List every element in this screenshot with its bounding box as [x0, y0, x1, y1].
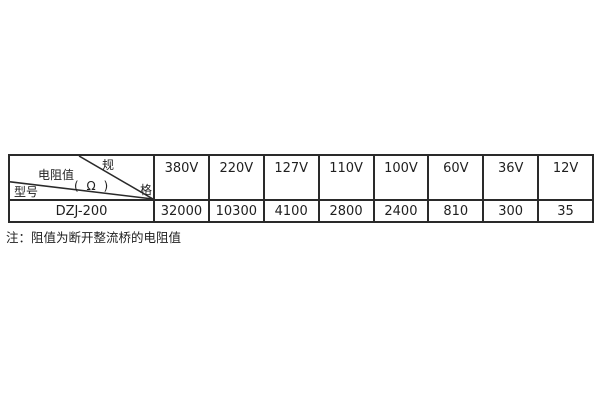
- corner-resistance-label: 电阻值: [38, 169, 74, 181]
- column-header-220v: 220V: [209, 155, 264, 200]
- corner-model-label: 型号: [14, 186, 38, 198]
- value-cell-110v: 2800: [319, 200, 374, 222]
- page: 规 格 电阻值 ( Ω ) 型号 380V 220V 127V 110V 100…: [0, 0, 600, 400]
- value-cell-60v: 810: [428, 200, 483, 222]
- value-cell-100v: 2400: [374, 200, 429, 222]
- corner-unit-label: ( Ω ): [74, 180, 110, 192]
- table-header-row: 规 格 电阻值 ( Ω ) 型号 380V 220V 127V 110V 100…: [9, 155, 593, 200]
- value-cell-12v: 35: [538, 200, 593, 222]
- column-header-100v: 100V: [374, 155, 429, 200]
- corner-spec-label-part2: 格: [140, 184, 152, 196]
- note-text: 注：阻值为断开整流桥的电阻值: [6, 227, 181, 246]
- table-data-row: DZJ-200 32000 10300 4100 2800 2400 810 3…: [9, 200, 593, 222]
- corner-spec-label-part1: 规: [102, 159, 114, 171]
- table-corner-cell: 规 格 电阻值 ( Ω ) 型号: [9, 155, 154, 200]
- column-header-12v: 12V: [538, 155, 593, 200]
- model-cell: DZJ-200: [9, 200, 154, 222]
- column-header-36v: 36V: [483, 155, 538, 200]
- column-header-380v: 380V: [154, 155, 209, 200]
- value-cell-127v: 4100: [264, 200, 319, 222]
- value-cell-36v: 300: [483, 200, 538, 222]
- column-header-60v: 60V: [428, 155, 483, 200]
- column-header-127v: 127V: [264, 155, 319, 200]
- value-cell-220v: 10300: [209, 200, 264, 222]
- column-header-110v: 110V: [319, 155, 374, 200]
- value-cell-380v: 32000: [154, 200, 209, 222]
- resistance-spec-table: 规 格 电阻值 ( Ω ) 型号 380V 220V 127V 110V 100…: [8, 154, 594, 223]
